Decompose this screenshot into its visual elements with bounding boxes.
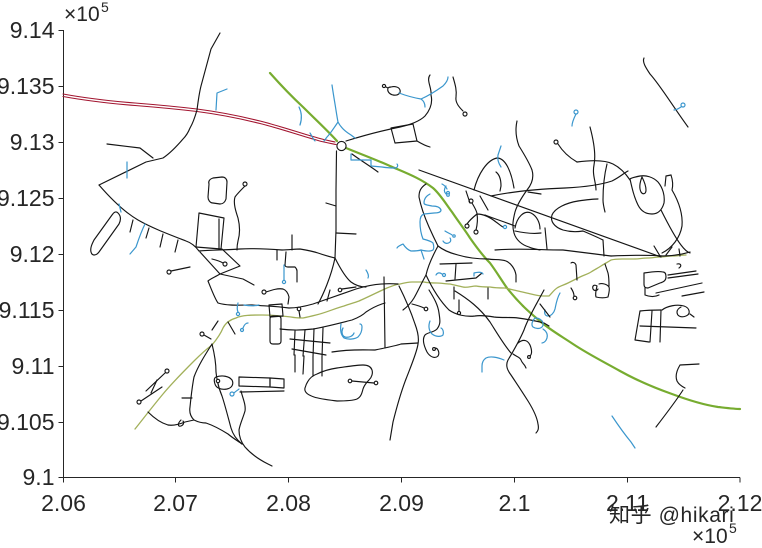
svg-text:9.12: 9.12 — [10, 241, 55, 267]
svg-text:×10: ×10 — [692, 525, 728, 548]
svg-text:2.1: 2.1 — [499, 490, 531, 516]
svg-text:9.1: 9.1 — [23, 464, 55, 490]
svg-text:9.105: 9.105 — [0, 409, 55, 435]
svg-text:2.06: 2.06 — [41, 490, 86, 516]
svg-text:9.135: 9.135 — [0, 73, 55, 99]
svg-text:2.08: 2.08 — [266, 490, 311, 516]
svg-text:9.14: 9.14 — [10, 17, 55, 43]
svg-text:5: 5 — [101, 0, 109, 15]
svg-text:9.115: 9.115 — [0, 297, 55, 323]
svg-text:×10: ×10 — [64, 3, 100, 26]
svg-text:9.13: 9.13 — [10, 129, 55, 155]
svg-text:2.07: 2.07 — [153, 490, 198, 516]
svg-text:知乎 @hikari: 知乎 @hikari — [609, 504, 734, 527]
svg-text:9.11: 9.11 — [11, 353, 54, 379]
svg-text:2.09: 2.09 — [379, 490, 424, 516]
svg-text:9.125: 9.125 — [0, 185, 55, 211]
